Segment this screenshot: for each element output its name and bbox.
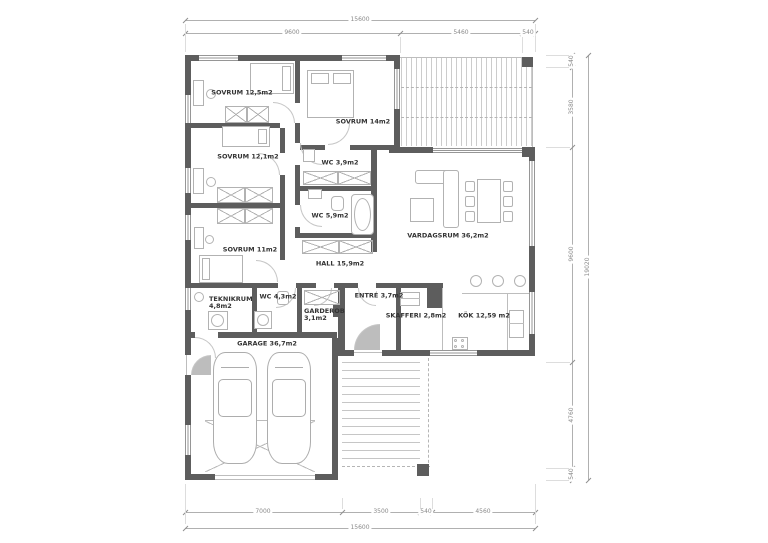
- room-label-entre: ENTRÉ 3,7m2: [355, 292, 404, 299]
- stair-treads: [342, 362, 420, 466]
- wall: [280, 175, 285, 260]
- dim-top-segment-1: 9600: [282, 30, 301, 36]
- garage-door-line: [215, 475, 315, 476]
- terrace-post: [522, 57, 533, 67]
- stove-burner: [454, 345, 457, 348]
- window: [199, 55, 238, 61]
- door-arc: [191, 355, 211, 375]
- terrace-glass-doors: [433, 148, 522, 153]
- extension-line: [535, 24, 536, 52]
- stove-burner: [461, 339, 464, 342]
- coffee-table: [410, 198, 434, 222]
- room-label-sovrum-2: SOVRUM 14m2: [336, 118, 390, 125]
- extension-line: [546, 67, 570, 68]
- dim-right-segment-5: 540: [569, 466, 575, 481]
- chair: [206, 177, 216, 187]
- wardrobe-cabinet: [217, 187, 245, 203]
- dim-top-segment-2: 5460: [451, 30, 470, 36]
- wall: [295, 123, 300, 143]
- desk: [193, 168, 204, 194]
- toilet: [331, 196, 344, 211]
- dim-tick: [533, 18, 539, 24]
- extension-line: [342, 498, 343, 509]
- room-label-sovrum-4: SOVRUM 11m2: [223, 246, 277, 253]
- room-label-garderob: GARDEROB 3,1m2: [304, 308, 340, 323]
- chair: [205, 235, 214, 244]
- wall: [297, 288, 302, 332]
- bathroom-cabinet: [338, 171, 371, 185]
- wall: [315, 474, 337, 480]
- wardrobe-cabinet: [245, 187, 273, 203]
- room-label-kok: KÖK 12,59 m2: [458, 312, 510, 319]
- dim-right-segment-2: 3580: [569, 97, 575, 116]
- room-label-wc-1: WC 3,9m2: [321, 159, 358, 166]
- extension-line: [546, 55, 570, 56]
- room-label-garage: GARAGE 36,7m2: [237, 340, 297, 347]
- water-heater: [194, 292, 204, 302]
- dim-line: [185, 33, 535, 34]
- dim-bottom-segment-2: 3500: [371, 509, 390, 515]
- extension-line: [432, 498, 433, 509]
- window: [430, 350, 477, 356]
- door-threshold: [354, 352, 382, 353]
- garage-door-line: [215, 479, 315, 480]
- dining-chair: [503, 181, 513, 192]
- dim-bottom-total: 15600: [348, 525, 371, 531]
- dim-right-segment-1: 540: [569, 53, 575, 68]
- wall: [529, 246, 535, 292]
- floor-plan: 15600 9600 5460 540 7000 3500 540 4560 1…: [0, 0, 768, 543]
- extension-line: [546, 480, 570, 481]
- extension-line: [185, 24, 186, 52]
- hall-cabinet: [302, 240, 339, 254]
- car: [213, 352, 257, 464]
- door-arc: [328, 123, 350, 145]
- dining-chair: [465, 181, 475, 192]
- appliance-line: [509, 323, 524, 324]
- wall: [238, 55, 342, 61]
- terrace-gridline: [401, 87, 532, 88]
- extension-line: [546, 362, 570, 363]
- shaft-block: [427, 288, 443, 308]
- bed-pillow: [258, 129, 267, 144]
- door-threshold: [186, 355, 187, 375]
- dim-tick: [533, 526, 539, 532]
- room-label-wc-3: WC 4,3m2: [259, 293, 296, 300]
- washing-machine-drum: [257, 314, 269, 326]
- window: [185, 168, 191, 193]
- bed-pillow: [282, 66, 291, 91]
- wall: [185, 474, 215, 480]
- window: [185, 425, 191, 455]
- wall: [185, 332, 195, 338]
- window: [342, 55, 386, 61]
- dim-bottom-segment-1: 7000: [253, 509, 272, 515]
- bed-pillow: [202, 258, 210, 280]
- wall: [389, 147, 433, 153]
- room-label-sovrum-3: SOVRUM 12,1m2: [217, 153, 278, 160]
- door-arc: [273, 102, 295, 123]
- wardrobe-cabinet: [225, 106, 247, 123]
- extension-line: [535, 484, 536, 524]
- dim-right-total: 19020: [585, 255, 591, 278]
- dim-bottom-segment-3: 540: [418, 509, 433, 515]
- boiler-drum: [211, 314, 224, 327]
- car: [267, 352, 311, 464]
- kitchen-counter: [507, 294, 508, 350]
- room-label-wc-2: WC 5,9m2: [311, 212, 348, 219]
- dim-right-segment-3: 9600: [569, 244, 575, 263]
- window: [185, 95, 191, 123]
- kitchen-counter: [462, 293, 529, 294]
- bathtub-basin: [354, 198, 371, 231]
- bathroom-cabinet: [303, 171, 338, 185]
- dining-chair: [503, 196, 513, 207]
- wall: [218, 332, 337, 338]
- extension-line: [546, 147, 570, 148]
- door-arc: [256, 260, 278, 282]
- bed-pillow: [333, 73, 351, 84]
- dining-table: [477, 179, 501, 223]
- window: [394, 69, 400, 109]
- extension-line: [546, 468, 570, 469]
- stove-burner: [454, 339, 457, 342]
- room-label-vardagsrum: VARDAGSRUM 36,2m2: [407, 232, 488, 239]
- wall: [185, 123, 191, 168]
- terrace-deck: [401, 58, 532, 146]
- dim-right-segment-4: 4760: [569, 405, 575, 424]
- room-label-hall: HALL 15,9m2: [316, 260, 364, 267]
- wall: [295, 61, 300, 103]
- hall-cabinet: [339, 240, 373, 254]
- dining-chair: [465, 211, 475, 222]
- window: [185, 288, 191, 310]
- wall: [185, 375, 191, 425]
- wall: [338, 350, 354, 356]
- wardrobe-cabinet: [217, 208, 245, 224]
- window: [185, 215, 191, 240]
- terrace-gridline: [401, 117, 532, 118]
- room-label-skafferi: SKAFFERI 2,8m2: [386, 312, 447, 319]
- refrigerator: [509, 310, 524, 338]
- wall: [477, 350, 535, 356]
- extension-line: [185, 484, 186, 524]
- stove-burner: [461, 345, 464, 348]
- window: [529, 161, 535, 246]
- dining-chair: [465, 196, 475, 207]
- wardrobe-cabinet: [247, 106, 269, 123]
- sofa: [443, 170, 459, 228]
- toilet: [303, 149, 315, 162]
- sink: [308, 189, 322, 199]
- wall: [529, 147, 535, 161]
- room-label-sovrum-1: SOVRUM 12,5m2: [211, 89, 272, 96]
- wall: [185, 55, 191, 95]
- stair-edge-dashed: [428, 358, 429, 468]
- wall: [295, 190, 300, 205]
- dining-chair: [503, 211, 513, 222]
- bar-stool: [470, 275, 482, 287]
- dim-bottom-segment-4: 4560: [473, 509, 492, 515]
- bar-stool: [492, 275, 504, 287]
- wall: [280, 128, 285, 153]
- wardrobe-cabinet: [245, 208, 273, 224]
- extension-line: [400, 37, 401, 53]
- extension-line: [522, 37, 523, 53]
- door-arc: [354, 324, 380, 350]
- wall: [332, 338, 338, 480]
- wall: [394, 55, 400, 69]
- terrace-edge: [532, 57, 533, 148]
- bed-pillow: [311, 73, 329, 84]
- dim-top-total: 15600: [348, 17, 371, 23]
- wardrobe-cabinet: [304, 290, 340, 305]
- dim-tick: [586, 478, 592, 484]
- dim-top-segment-3: 540: [520, 30, 535, 36]
- wall: [185, 240, 191, 288]
- desk: [194, 227, 204, 249]
- desk: [193, 80, 204, 106]
- stair-post: [417, 464, 429, 476]
- window: [529, 292, 535, 334]
- room-label-teknikrum: TEKNIKRUM 4,8m2: [209, 296, 249, 311]
- bar-stool: [514, 275, 526, 287]
- wall: [382, 350, 430, 356]
- wall: [191, 283, 278, 288]
